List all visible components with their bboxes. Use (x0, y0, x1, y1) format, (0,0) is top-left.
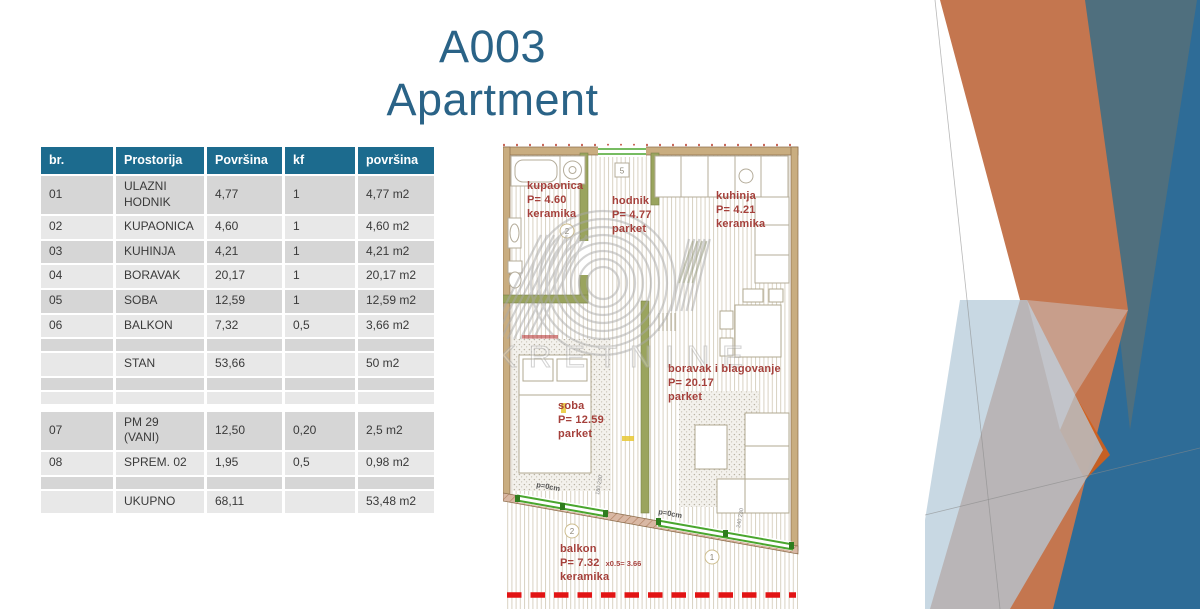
marker-circle-2b: 2 (570, 527, 575, 536)
room-label-kuhinja: kuhinjaP= 4.21keramika (716, 190, 765, 231)
table-cell (207, 339, 282, 351)
table-cell: 12,59 m2 (358, 290, 434, 313)
table-cell: 07 (41, 412, 113, 450)
room-label-line: parket (612, 223, 652, 237)
table-cell: STAN (116, 353, 204, 376)
marker-circle-1: 1 (710, 553, 715, 562)
table-cell: 20,17 (207, 265, 282, 288)
room-label-hodnik: hodnikP= 4.77parket (612, 195, 652, 236)
table-cell (41, 339, 113, 351)
table-cell: 20,17 m2 (358, 265, 434, 288)
table-cell: 53,66 (207, 353, 282, 376)
table-cell: BORAVAK (116, 265, 204, 288)
table-cell: 53,48 m2 (358, 491, 434, 514)
table-row (41, 477, 434, 489)
table-cell: 4,77 (207, 176, 282, 214)
table-row: 05SOBA12,59112,59 m2 (41, 290, 434, 313)
room-label-line: balkon (560, 543, 641, 557)
table-cell: 03 (41, 241, 113, 264)
table-cell (41, 477, 113, 489)
title-line-2: Apartment (0, 73, 985, 126)
table-spacer-row (41, 406, 434, 410)
table-cell: 4,21 m2 (358, 241, 434, 264)
table-cell: 1 (285, 290, 355, 313)
floor-plan: 5 2 2 1 p=0cm p=0cm 180 230 240 230 (503, 143, 803, 609)
table-cell: 4,60 (207, 216, 282, 239)
column-header-2: Prostorija (116, 147, 204, 174)
table-cell (207, 392, 282, 404)
table-cell (207, 378, 282, 390)
table-cell: 68,11 (207, 491, 282, 514)
table-cell: 1 (285, 176, 355, 214)
table-cell: KUPAONICA (116, 216, 204, 239)
table-cell: ULAZNI HODNIK (116, 176, 204, 214)
table-cell: UKUPNO (116, 491, 204, 514)
table-cell: 1 (285, 265, 355, 288)
room-label-boravak-i-blagovanje: boravak i blagovanjeP= 20.17parket (668, 363, 781, 404)
room-label-line: parket (668, 391, 781, 405)
marker-box-5: 5 (620, 167, 625, 176)
table-cell: 05 (41, 290, 113, 313)
table-cell: 3,66 m2 (358, 315, 434, 338)
area-table: br.ProstorijaPovršinakfpovršina 01ULAZNI… (38, 145, 437, 515)
room-label-line: P= 4.77 (612, 209, 652, 223)
slide-title: A003 Apartment (0, 20, 985, 126)
room-label-line: keramika (527, 208, 583, 222)
table-cell: SPREM. 02 (116, 452, 204, 475)
table-cell: 0,20 (285, 412, 355, 450)
table-row (41, 392, 434, 404)
table-header-row: br.ProstorijaPovršinakfpovršina (41, 147, 434, 174)
table-cell: 02 (41, 216, 113, 239)
room-label-soba: sobaP= 12.59parket (558, 400, 604, 441)
room-label-line: keramika (716, 218, 765, 232)
table-row: 07PM 29 (VANI)12,500,202,5 m2 (41, 412, 434, 450)
room-label-line: soba (558, 400, 604, 414)
table-cell: 0,5 (285, 315, 355, 338)
table-row: UKUPNO68,1153,48 m2 (41, 491, 434, 514)
table-row: 06BALKON7,320,53,66 m2 (41, 315, 434, 338)
table-cell (41, 392, 113, 404)
table-cell (285, 353, 355, 376)
room-label-line: P= 4.60 (527, 194, 583, 208)
room-label-line: parket (558, 428, 604, 442)
table-cell: 08 (41, 452, 113, 475)
table-cell: 01 (41, 176, 113, 214)
table-cell: BALKON (116, 315, 204, 338)
room-label-line: kupaonica (527, 180, 583, 194)
table-cell: 0,98 m2 (358, 452, 434, 475)
slide: A003 Apartment br.ProstorijaPovršinakfpo… (0, 0, 1200, 609)
room-label-line: boravak i blagovanje (668, 363, 781, 377)
table-cell (116, 339, 204, 351)
table-cell: 04 (41, 265, 113, 288)
table-cell: 12,50 (207, 412, 282, 450)
room-label-line: P= 12.59 (558, 414, 604, 428)
table-cell (358, 477, 434, 489)
table-row: 08SPREM. 021,950,50,98 m2 (41, 452, 434, 475)
table-cell: 1 (285, 216, 355, 239)
table-cell: 4,77 m2 (358, 176, 434, 214)
table-cell: 1,95 (207, 452, 282, 475)
room-label-line: P= 7.32x0.5= 3.66 (560, 557, 641, 571)
table-cell (358, 339, 434, 351)
table-cell: PM 29 (VANI) (116, 412, 204, 450)
table-cell: 0,5 (285, 452, 355, 475)
room-label-note: x0.5= 3.66 (606, 559, 642, 568)
table-row: 04BORAVAK20,17120,17 m2 (41, 265, 434, 288)
column-header-4: kf (285, 147, 355, 174)
table-row: 03KUHINJA4,2114,21 m2 (41, 241, 434, 264)
table-cell: KUHINJA (116, 241, 204, 264)
spacer-cell (41, 406, 434, 410)
table-row (41, 378, 434, 390)
table-cell: 06 (41, 315, 113, 338)
table-cell: 12,59 (207, 290, 282, 313)
table-cell: 2,5 m2 (358, 412, 434, 450)
table-row: 02KUPAONICA4,6014,60 m2 (41, 216, 434, 239)
table-cell: 7,32 (207, 315, 282, 338)
table-cell: 4,21 (207, 241, 282, 264)
room-label-balkon: balkonP= 7.32x0.5= 3.66keramika (560, 543, 641, 584)
table-cell (41, 353, 113, 376)
table-cell (41, 491, 113, 514)
table-cell (285, 378, 355, 390)
table-cell: 4,60 m2 (358, 216, 434, 239)
table-cell (358, 378, 434, 390)
table-row: STAN53,6650 m2 (41, 353, 434, 376)
table-cell (116, 378, 204, 390)
table-cell (285, 339, 355, 351)
table-cell (358, 392, 434, 404)
table-row (41, 339, 434, 351)
table-row: 01ULAZNI HODNIK4,7714,77 m2 (41, 176, 434, 214)
slide-decoration (925, 0, 1200, 609)
table-cell (116, 477, 204, 489)
table-cell: 50 m2 (358, 353, 434, 376)
table-cell (285, 491, 355, 514)
room-label-line: P= 4.21 (716, 204, 765, 218)
room-label-line: kuhinja (716, 190, 765, 204)
room-label-kupaonica: kupaonicaP= 4.60keramika (527, 180, 583, 221)
table-cell (207, 477, 282, 489)
column-header-3: Površina (207, 147, 282, 174)
entrance-gap (598, 146, 646, 158)
room-label-line: P= 20.17 (668, 377, 781, 391)
table-cell (116, 392, 204, 404)
room-label-line: keramika (560, 571, 641, 585)
table-cell (285, 477, 355, 489)
title-line-1: A003 (0, 20, 985, 73)
table-cell (41, 378, 113, 390)
room-label-line: hodnik (612, 195, 652, 209)
table-cell: SOBA (116, 290, 204, 313)
table-cell: 1 (285, 241, 355, 264)
column-header-5: površina (358, 147, 434, 174)
column-header-1: br. (41, 147, 113, 174)
table-cell (285, 392, 355, 404)
